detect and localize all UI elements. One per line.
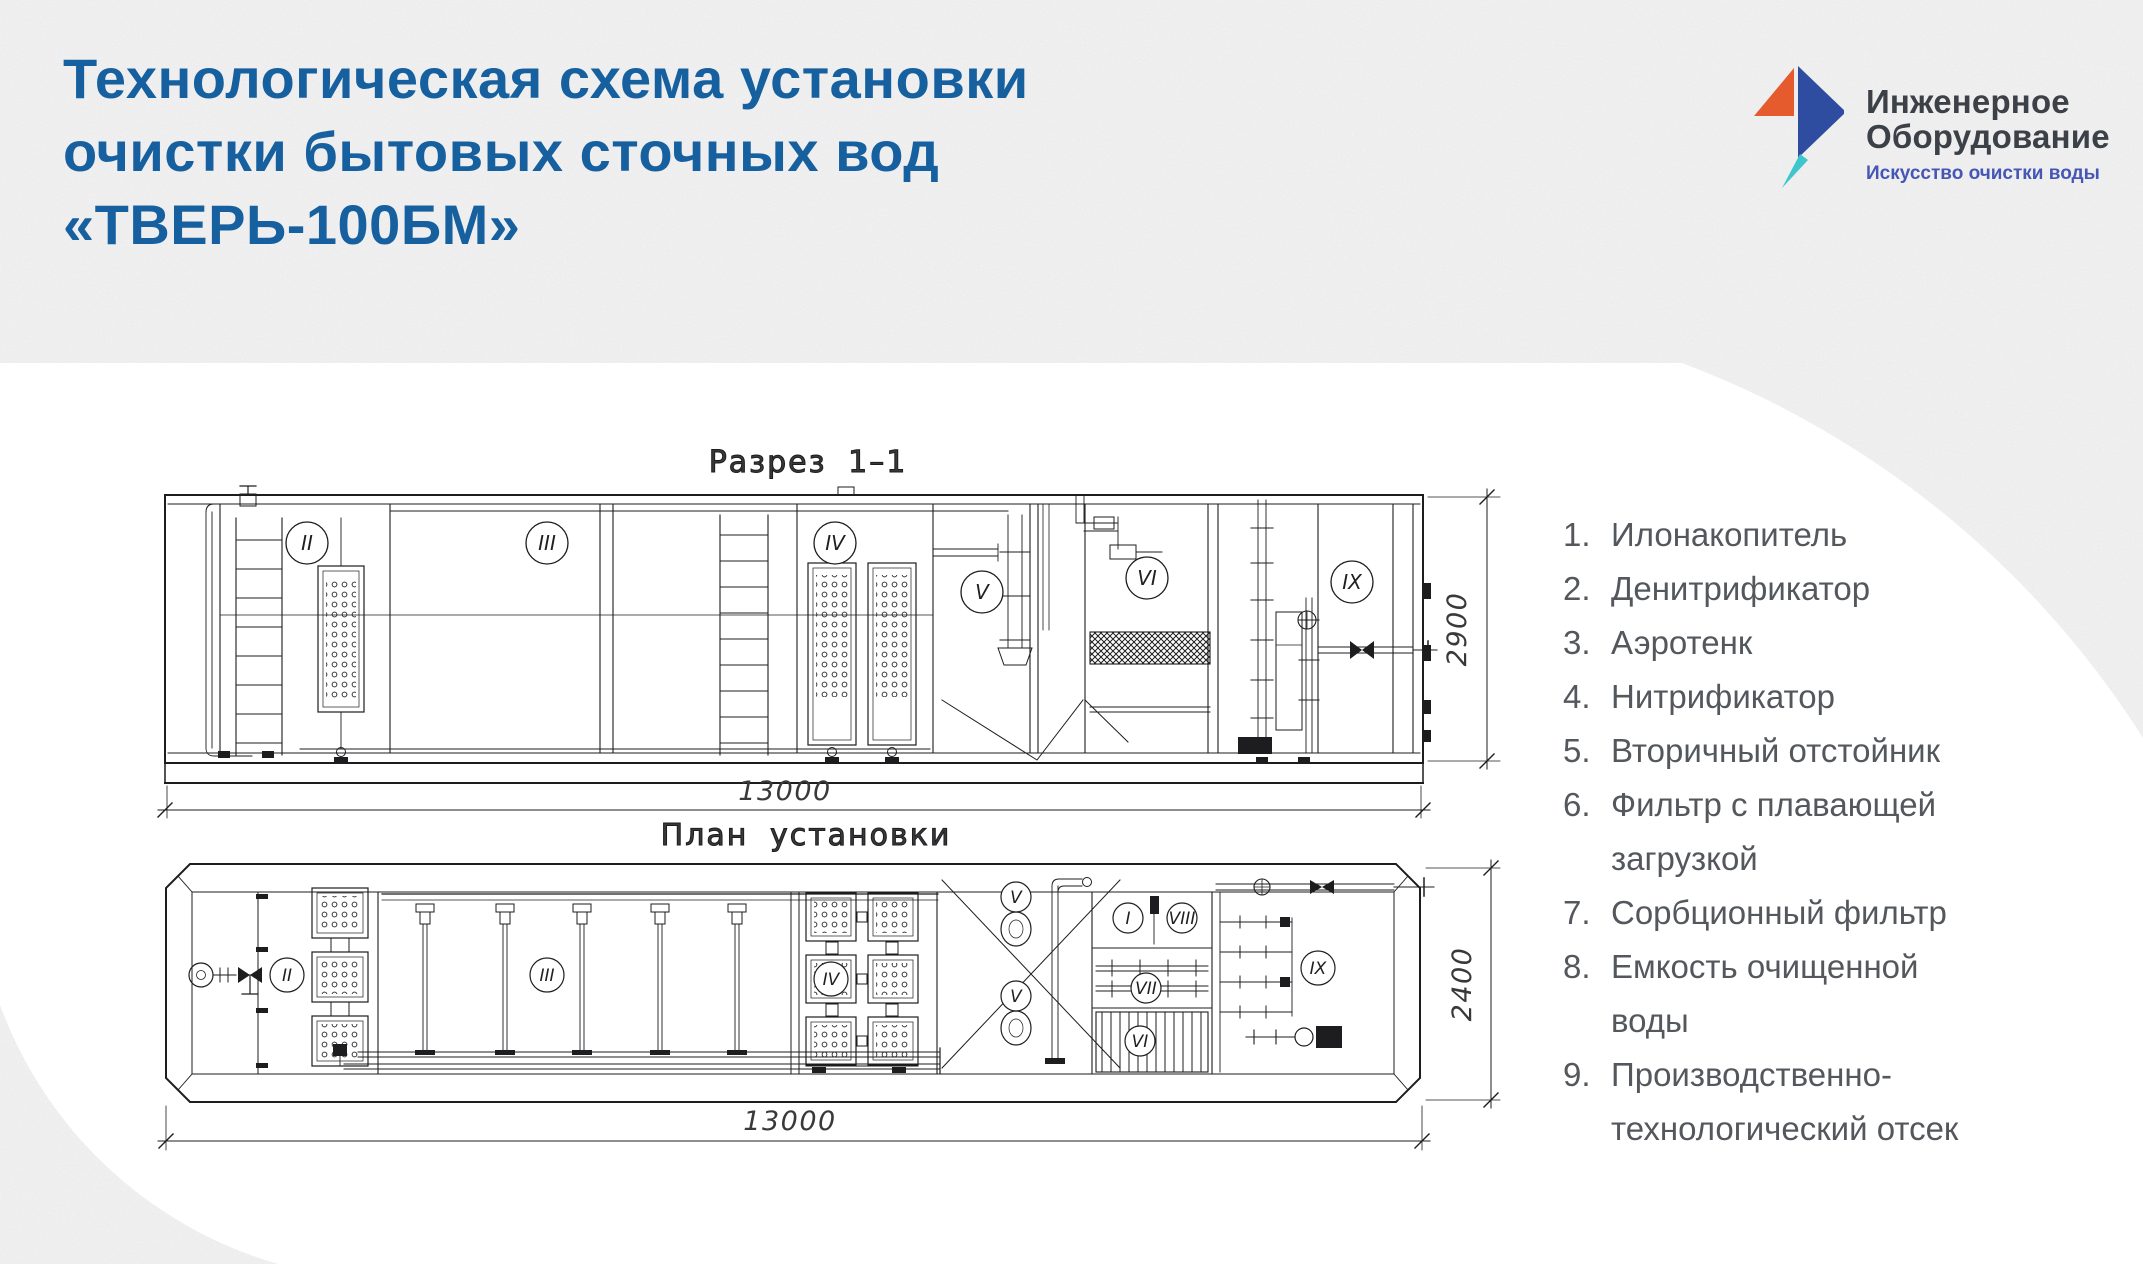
slide: Разрез 1–1	[0, 0, 2143, 1264]
legend-item-label: Аэротенк	[1611, 616, 1995, 670]
section-tag-IV: IV	[825, 531, 846, 555]
legend-item-label: Емкость очищенной воды	[1611, 940, 1995, 1048]
legend-item-label: Фильтр с плавающей загрузкой	[1611, 778, 1995, 886]
plan-tag-V-1: V	[1010, 888, 1023, 908]
legend-item-number: 2.	[1563, 562, 1611, 616]
logo-pinwheel-icon	[1748, 58, 1844, 190]
legend-item-5: 5. Вторичный отстойник	[1563, 724, 1995, 778]
plan-drawing-title: План установки	[661, 818, 952, 853]
legend-item-8: 8. Емкость очищенной воды	[1563, 940, 1995, 1048]
legend-item-label: Илонакопитель	[1611, 508, 1995, 562]
logo-name-line-2: Оборудование	[1866, 119, 2110, 154]
section-tag-III: III	[538, 531, 556, 555]
section-tag-II: II	[301, 531, 313, 555]
legend-item-number: 9.	[1563, 1048, 1611, 1156]
plan-tag-IX: IX	[1310, 959, 1327, 979]
title-line-2: очистки бытовых сточных вод	[63, 115, 1029, 188]
legend-item-3: 3. Аэротенк	[1563, 616, 1995, 670]
legend-list: 1. Илонакопитель 2. Денитрификатор 3. Аэ…	[1563, 508, 1995, 1156]
logo-tagline: Искусство очистки воды	[1866, 163, 2110, 185]
legend-item-2: 2. Денитрификатор	[1563, 562, 1995, 616]
legend-item-label: Сорбционный фильтр	[1611, 886, 1995, 940]
plan-tag-I: I	[1125, 909, 1130, 929]
plan-tag-II: II	[282, 966, 292, 986]
logo-name-line-1: Инженерное	[1866, 84, 2110, 119]
title-line-3: «ТВЕРЬ-100БМ»	[63, 188, 1029, 261]
legend-item-label: Производственно-технологический отсек	[1611, 1048, 1995, 1156]
plan-width-dim: 2400	[1447, 947, 1478, 1022]
plan-tag-VI: VI	[1132, 1032, 1149, 1052]
legend-item-9: 9. Производственно-технологический отсек	[1563, 1048, 1995, 1156]
legend-item-number: 5.	[1563, 724, 1611, 778]
section-tag-IX: IX	[1342, 570, 1363, 594]
legend-item-7: 7. Сорбционный фильтр	[1563, 886, 1995, 940]
legend-item-label: Нитрификатор	[1611, 670, 1995, 724]
section-tag-VI: VI	[1137, 566, 1157, 590]
legend-item-number: 3.	[1563, 616, 1611, 670]
legend-item-1: 1. Илонакопитель	[1563, 508, 1995, 562]
plan-tag-V-2: V	[1010, 987, 1023, 1007]
section-height-dim: 2900	[1442, 592, 1473, 667]
legend-item-number: 7.	[1563, 886, 1611, 940]
page-title: Технологическая схема установки очистки …	[63, 42, 1029, 261]
plan-tag-VIII: VIII	[1169, 909, 1196, 929]
title-line-1: Технологическая схема установки	[63, 42, 1029, 115]
plan-tag-IV: IV	[823, 970, 841, 990]
legend-item-number: 4.	[1563, 670, 1611, 724]
company-logo: Инженерное Оборудование Искусство очистк…	[1748, 58, 2108, 190]
legend-item-4: 4. Нитрификатор	[1563, 670, 1995, 724]
section-length-dim: 13000	[738, 776, 831, 807]
section-tag-V: V	[975, 580, 990, 604]
legend-item-6: 6. Фильтр с плавающей загрузкой	[1563, 778, 1995, 886]
plan-tag-III: III	[539, 966, 554, 986]
legend-item-number: 6.	[1563, 778, 1611, 886]
plan-length-dim: 13000	[743, 1106, 836, 1137]
plan-tag-VII: VII	[1135, 979, 1157, 999]
legend-item-number: 1.	[1563, 508, 1611, 562]
section-drawing-title: Разрез 1–1	[709, 445, 908, 480]
legend-item-label: Денитрификатор	[1611, 562, 1995, 616]
legend-item-label: Вторичный отстойник	[1611, 724, 1995, 778]
legend-item-number: 8.	[1563, 940, 1611, 1048]
logo-text: Инженерное Оборудование Искусство очистк…	[1866, 84, 2110, 190]
